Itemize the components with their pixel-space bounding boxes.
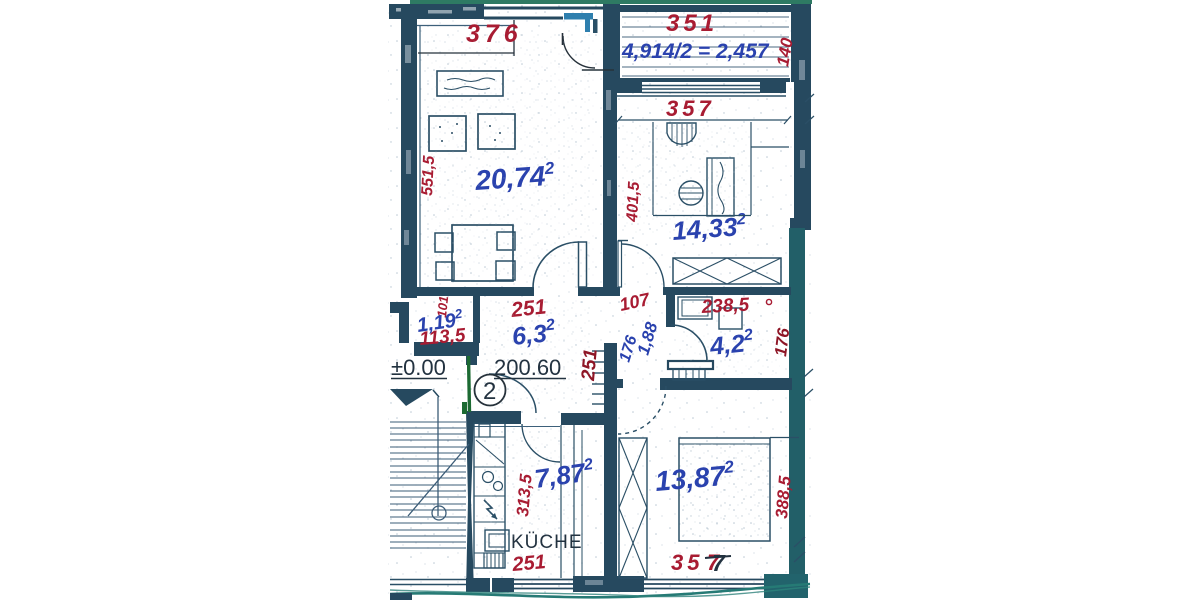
svg-text:351: 351 [666, 10, 718, 37]
svg-text:357: 357 [666, 96, 715, 121]
svg-text:35: 35 [671, 550, 703, 575]
svg-text:238,5: 238,5 [700, 295, 750, 319]
svg-text:388,5: 388,5 [772, 475, 795, 520]
svg-text:7: 7 [712, 550, 726, 576]
svg-text:113,5: 113,5 [419, 325, 467, 350]
svg-text:±0.00: ±0.00 [391, 355, 446, 380]
svg-text:4,914/2 = 2,457: 4,914/2 = 2,457 [621, 40, 770, 63]
